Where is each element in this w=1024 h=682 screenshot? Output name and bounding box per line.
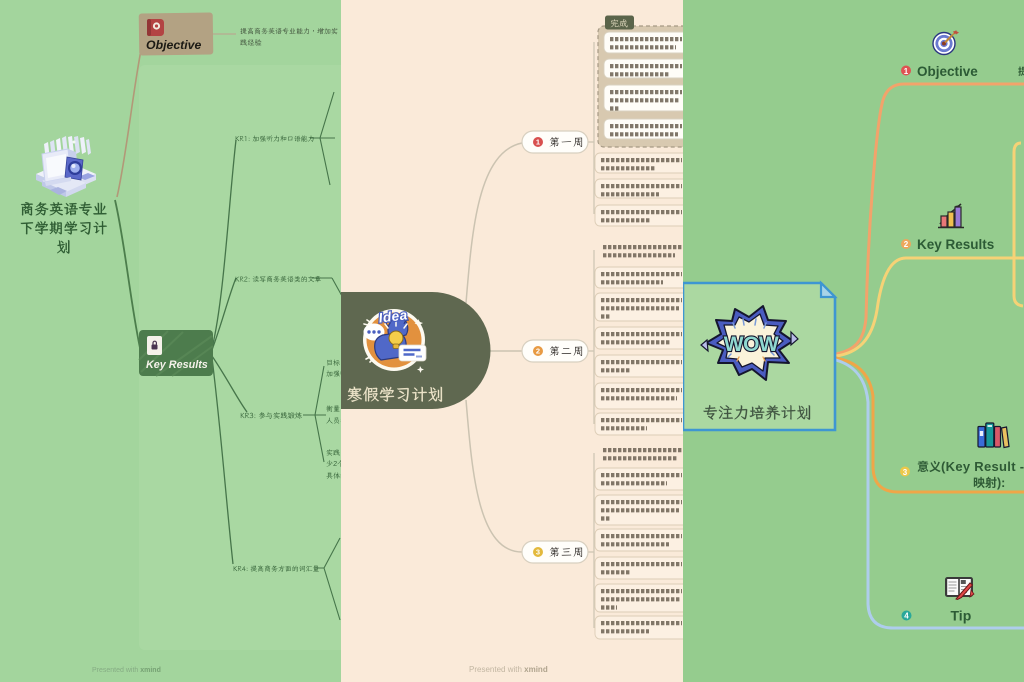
svg-text:Tip: Tip xyxy=(951,608,972,624)
svg-text:Key Results: Key Results xyxy=(146,359,208,371)
svg-text:2: 2 xyxy=(904,240,909,249)
svg-text:Objective: Objective xyxy=(917,64,978,79)
svg-text:(Key Result - O: (Key Result - O xyxy=(941,459,1024,474)
svg-text:Key Results: Key Results xyxy=(917,237,994,252)
svg-text:Presented with xmind: Presented with xmind xyxy=(92,667,161,674)
svg-text:):: ): xyxy=(997,476,1005,490)
svg-text:3: 3 xyxy=(536,548,540,557)
svg-text:4: 4 xyxy=(904,611,909,620)
svg-text:3: 3 xyxy=(903,468,908,477)
svg-text:2: 2 xyxy=(536,347,540,356)
svg-text:Objective: Objective xyxy=(146,38,202,52)
svg-text:1: 1 xyxy=(536,138,540,147)
svg-text:1: 1 xyxy=(904,67,909,76)
svg-text:WOW: WOW xyxy=(724,333,779,356)
svg-text:Presented with xmind: Presented with xmind xyxy=(469,665,548,674)
